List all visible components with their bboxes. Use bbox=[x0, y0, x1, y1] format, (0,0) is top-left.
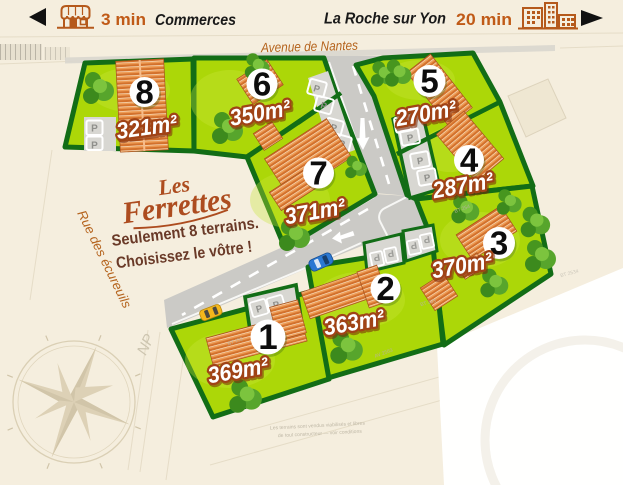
svg-text:20 min: 20 min bbox=[456, 10, 512, 29]
svg-text:Commerces: Commerces bbox=[155, 12, 236, 29]
svg-text:3: 3 bbox=[490, 225, 508, 262]
svg-text:5: 5 bbox=[420, 63, 438, 100]
svg-text:6: 6 bbox=[253, 66, 271, 103]
svg-text:8: 8 bbox=[135, 74, 153, 111]
svg-text:7: 7 bbox=[309, 155, 327, 192]
svg-text:P: P bbox=[91, 141, 98, 152]
svg-text:1: 1 bbox=[258, 318, 277, 357]
svg-text:2: 2 bbox=[376, 270, 394, 307]
svg-text:Avenue de Nantes: Avenue de Nantes bbox=[260, 38, 358, 56]
svg-text:P: P bbox=[91, 124, 98, 135]
svg-text:La Roche sur Yon: La Roche sur Yon bbox=[324, 11, 446, 28]
svg-text:3 min: 3 min bbox=[101, 10, 146, 29]
